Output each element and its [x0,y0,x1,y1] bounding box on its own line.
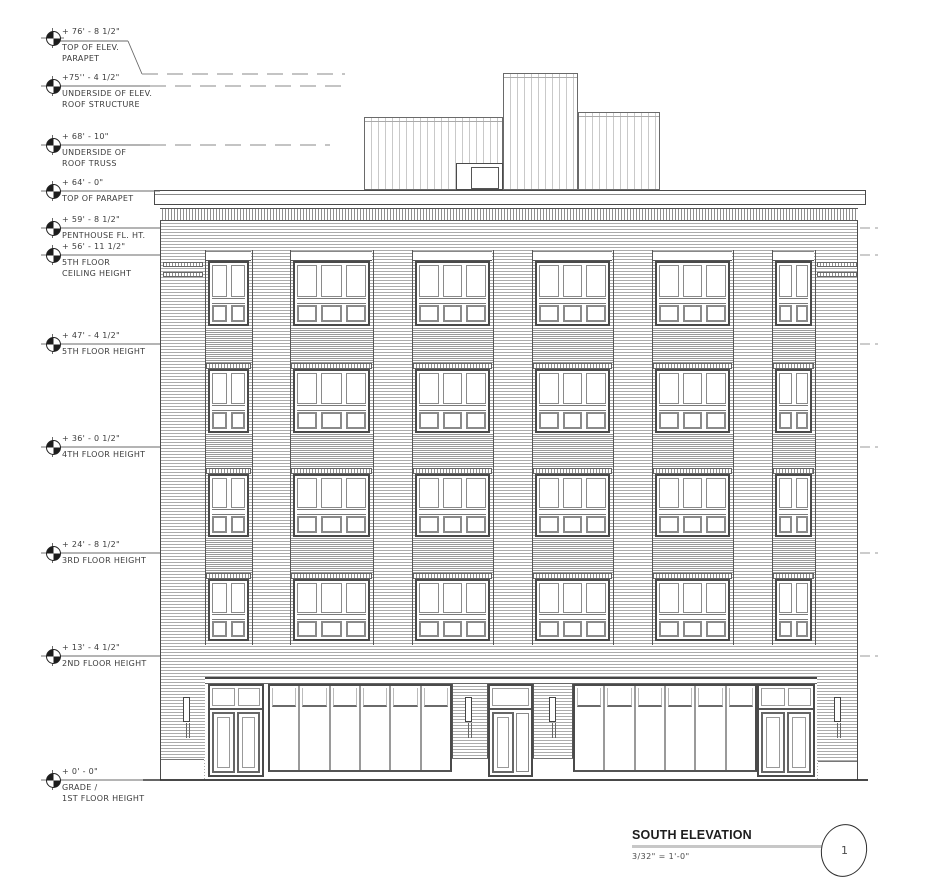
window-pane [563,478,583,508]
window-pane [563,621,583,637]
window-pane [466,412,486,429]
window-transom-bar [779,298,808,304]
window-pane [231,373,246,404]
bay-pier-line [532,250,533,645]
window-pane [779,583,792,613]
elevation-label: TOP OF PARAPET [62,193,133,204]
window-upper-sash [419,265,486,297]
spandrel-panel [532,433,613,468]
storefront-glass-pane [666,707,694,770]
window-lower-sash [419,516,486,533]
window-pane [321,265,341,297]
storefront-bay [270,686,298,770]
bay-pier-line [412,250,413,645]
window-pane [659,305,679,323]
window-pane [419,305,439,323]
storefront-glass-pane [696,707,724,770]
window-upper-sash [212,265,245,297]
storefront-glass-pane [575,707,603,770]
window-upper-sash [212,478,245,508]
wall-sconce [465,697,472,722]
window-transom-bar [212,405,245,411]
window-transom-bar [659,298,726,304]
window-pane [466,373,486,404]
window-lower-sash [297,412,366,429]
window-pane [706,621,726,637]
storefront-bay [725,686,755,770]
window-head-band [413,251,492,261]
parapet-cap [154,190,866,205]
window-pane [706,478,726,508]
window-lower-sash [659,516,726,533]
window-pane [297,373,317,404]
storefront-bay [359,686,389,770]
pier-base [533,758,573,779]
storefront-bay [603,686,633,770]
window-pane [706,583,726,613]
window-pane [683,305,703,323]
window-transom-bar [539,405,606,411]
elevation-value: + 64' - 0" [62,178,103,187]
window-upper-sash [419,478,486,508]
window-lower-sash [539,621,606,637]
window-pane [321,305,341,323]
window-pane [563,412,583,429]
window-pane [321,621,341,637]
bay-pier-line [652,250,653,645]
window-pane [796,583,809,613]
window-upper-sash [659,373,726,404]
door-leaf [212,712,235,773]
window-lower-sash [779,516,808,533]
window-pane [466,265,486,297]
window-upper-sash [539,265,606,297]
window [535,261,610,326]
door-body [490,710,531,775]
window-pane [443,265,463,297]
window-lower-sash [297,621,366,637]
window-pane [419,265,439,297]
storefront-glass-left [268,684,452,772]
window-pane [796,412,809,429]
window-pane [297,516,317,533]
elevation-value: +75'' - 4 1/2" [62,73,120,82]
elevation-value: + 56' - 11 1/2" [62,242,125,251]
roof-cap-line [579,116,659,117]
spandrel-panel [652,537,733,573]
window-transom-bar [779,614,808,620]
storefront-transom-pane [638,688,662,707]
window-pane [659,516,679,533]
window-upper-sash [659,583,726,613]
window-pane [466,516,486,533]
window-upper-sash [659,478,726,508]
accent-band [163,262,203,267]
window-pane [443,305,463,323]
window-upper-sash [539,583,606,613]
window-transom-bar [539,509,606,515]
benchmark-icon [46,79,61,94]
storefront-bay [298,686,328,770]
elevation-value: + 59' - 8 1/2" [62,215,120,224]
window-pane [466,305,486,323]
door-body [210,710,262,775]
window-transom-bar [659,614,726,620]
window-pane [683,621,703,637]
door-leaf [237,712,260,773]
door-leaf-panel [217,717,230,768]
window-lower-sash [419,412,486,429]
elevation-label: UNDERSIDE OF ELEV.ROOF STRUCTURE [62,88,152,110]
spandrel-panel [205,327,252,363]
window-pane [231,305,246,323]
window-pane [231,412,246,429]
bay-pier-line [205,250,206,645]
window-pane [231,516,246,533]
window-pane [683,265,703,297]
benchmark-icon [46,546,61,561]
storefront-glass-pane [300,707,328,770]
window-pane [443,373,463,404]
window-pane [779,478,792,508]
bay-pier-line [772,250,773,645]
door-leaf-panel [242,717,255,768]
window-transom-bar [419,405,486,411]
window [208,579,249,641]
window-pane [443,583,463,613]
window-upper-sash [419,373,486,404]
window [208,261,249,326]
bay-pier-line [252,250,253,645]
window-transom-bar [419,614,486,620]
window [655,369,730,433]
window [293,474,370,537]
window-pane [419,373,439,404]
elevation-value: + 68' - 10" [62,132,109,141]
window-pane [796,621,809,637]
window-pane [586,412,606,429]
door-leaf [761,712,785,773]
benchmark-icon [46,337,61,352]
elevation-label: 5TH FLOOR HEIGHT [62,346,145,357]
window-pane [659,373,679,404]
door-leaf [787,712,811,773]
window-lower-sash [659,305,726,323]
benchmark-icon [46,221,61,236]
door-body [759,710,813,775]
window-pane [346,305,366,323]
window-pane [419,583,439,613]
window-pane [346,583,366,613]
window-pane [346,373,366,404]
window-lower-sash [212,516,245,533]
window-pane [443,621,463,637]
elevation-label: GRADE /1ST FLOOR HEIGHT [62,782,144,804]
window-pane [212,516,227,533]
benchmark-icon [46,440,61,455]
storefront-transom-pane [363,688,387,707]
window [208,474,249,537]
window-pane [212,583,227,613]
window-pane [539,583,559,613]
spandrel-panel [205,537,252,573]
window-lower-sash [212,621,245,637]
window [415,474,490,537]
bay-pier-line [290,250,291,645]
storefront-glass-pane [270,707,298,770]
elevation-drawing-sheet: + 76' - 8 1/2"TOP OF ELEV.PARAPET+75'' -… [0,0,950,883]
window-pane [346,516,366,533]
accent-band [163,272,203,277]
window-pane [796,305,809,323]
storefront-glass-pane [727,707,755,770]
window-pane [683,478,703,508]
benchmark-icon [46,248,61,263]
window-pane [563,305,583,323]
window-pane [563,516,583,533]
window [293,261,370,326]
storefront-transom-pane [393,688,417,707]
window-pane [321,478,341,508]
window-upper-sash [297,265,366,297]
window-transom-bar [212,298,245,304]
window [655,261,730,326]
door-leaf-panel [766,717,780,768]
window-lower-sash [419,621,486,637]
spandrel-panel [290,433,373,468]
window-upper-sash [297,583,366,613]
window-upper-sash [539,478,606,508]
window-transom-bar [297,509,366,515]
window-pane [231,478,246,508]
window-transom-bar [779,405,808,411]
storefront-glass-pane [636,707,664,770]
elevation-label: TOP OF ELEV.PARAPET [62,42,119,64]
window-upper-sash [212,373,245,404]
window-upper-sash [659,265,726,297]
spandrel-panel [532,327,613,363]
spandrel-panel [412,327,493,363]
elevation-value: + 36' - 0 1/2" [62,434,120,443]
window-transom-bar [297,298,366,304]
window-pane [779,516,792,533]
window-head-band [291,251,372,261]
drawing-title: SOUTH ELEVATION [632,828,752,842]
elevation-value: + 24' - 8 1/2" [62,540,120,549]
storefront-glass-pane [361,707,389,770]
window-pane [231,621,246,637]
window [208,369,249,433]
window-pane [419,621,439,637]
roof-access-door-leaf [471,167,499,189]
window [293,579,370,641]
window-pane [539,305,559,323]
window-pane [779,305,792,323]
storefront-transom-pane [333,688,357,707]
door-transom-pane [212,688,235,706]
accent-band [817,262,857,267]
window-pane [796,516,809,533]
window-pane [231,265,246,297]
window-pane [659,478,679,508]
door-transom-pane [761,688,785,706]
window-lower-sash [779,412,808,429]
spandrel-panel [652,327,733,363]
window-pane [539,516,559,533]
window-pane [586,478,606,508]
window-pane [683,516,703,533]
window-pane [212,412,227,429]
elevator-bulkhead [503,73,578,190]
window-pane [659,621,679,637]
pier-base [161,759,204,779]
spandrel-panel [290,327,373,363]
storefront-bay [664,686,694,770]
window-pane [779,265,792,297]
window-pane [297,478,317,508]
window-transom-bar [297,405,366,411]
window-lower-sash [659,412,726,429]
window-transom-bar [539,298,606,304]
window-lower-sash [539,412,606,429]
window-pane [779,412,792,429]
door-sidelite [516,713,529,772]
elevation-value: + 47' - 4 1/2" [62,331,120,340]
window-pane [706,412,726,429]
storefront-bay [420,686,450,770]
elevation-label: 3RD FLOOR HEIGHT [62,555,146,566]
storefront-transom-pane [577,688,601,707]
roof-access-door [456,163,503,190]
window-pane [779,373,792,404]
window-pane [706,516,726,533]
window-pane [586,265,606,297]
benchmark-icon [46,184,61,199]
elevation-label: PENTHOUSE FL. HT. [62,230,145,241]
window-pane [443,478,463,508]
window-pane [297,265,317,297]
window-pane [539,265,559,297]
door-leaf-panel [497,717,509,768]
window-lower-sash [297,516,366,533]
window-lower-sash [659,621,726,637]
storefront-transom-pane [698,688,722,707]
elevation-value: + 0' - 0" [62,767,98,776]
window-head-band [206,251,251,261]
parapet-cap-line [155,194,865,195]
window-pane [212,305,227,323]
window-lower-sash [297,305,366,323]
window [655,579,730,641]
door-leaf-panel [792,717,806,768]
spandrel-panel [652,433,733,468]
soldier-course-band [160,208,858,221]
window-pane [563,373,583,404]
window-head-band [653,251,732,261]
pier-base [452,758,488,779]
window-pane [212,373,227,404]
window-transom-bar [212,614,245,620]
storefront-transom-pane [607,688,631,707]
bay-pier-line [733,250,734,645]
window [775,579,812,641]
storefront-glass-pane [391,707,419,770]
window-pane [443,412,463,429]
wall-sconce [183,697,190,722]
window-transom-bar [297,614,366,620]
title-underline [632,845,826,848]
window-pane [539,412,559,429]
window-pane [586,621,606,637]
window [535,579,610,641]
window-transom-bar [779,509,808,515]
window-pane [659,265,679,297]
window-upper-sash [779,478,808,508]
storefront-transom-pane [302,688,326,707]
accent-band [817,272,857,277]
window-pane [796,265,809,297]
benchmark-icon [46,649,61,664]
window-pane [659,583,679,613]
storefront-head-band [205,677,817,684]
door-transom-pane [788,688,812,706]
elevation-label: UNDERSIDE OFROOF TRUSS [62,147,126,169]
entrance-door-left [208,684,264,777]
window-pane [586,373,606,404]
window-pane [683,373,703,404]
window-pane [297,621,317,637]
window [293,369,370,433]
window-pane [297,305,317,323]
window-pane [466,621,486,637]
window-upper-sash [297,478,366,508]
storefront-bay [694,686,724,770]
bay-pier-line [493,250,494,645]
pier-base [818,761,857,779]
spandrel-panel [412,433,493,468]
window [415,579,490,641]
elevation-label: 5TH FLOORCEILING HEIGHT [62,257,131,279]
window [415,369,490,433]
window-pane [466,478,486,508]
window-pane [796,478,809,508]
spandrel-panel [205,433,252,468]
bay-pier-line [613,250,614,645]
window-lower-sash [779,621,808,637]
window-upper-sash [779,373,808,404]
spandrel-panel [772,433,815,468]
window-pane [706,373,726,404]
window-pane [231,583,246,613]
window-pane [321,373,341,404]
window-pane [212,478,227,508]
window-pane [321,583,341,613]
window-transom-bar [212,509,245,515]
window-pane [706,265,726,297]
elevation-value: + 13' - 4 1/2" [62,643,120,652]
elevation-label: 2ND FLOOR HEIGHT [62,658,147,669]
storefront-transom-pane [424,688,448,707]
window-pane [586,583,606,613]
entrance-door-middle [488,684,533,777]
spandrel-panel [772,327,815,363]
window-pane [443,516,463,533]
window-head-band [773,251,814,261]
window-lower-sash [539,305,606,323]
wall-sconce [549,697,556,722]
door-transom [759,686,813,710]
storefront-bay [575,686,603,770]
